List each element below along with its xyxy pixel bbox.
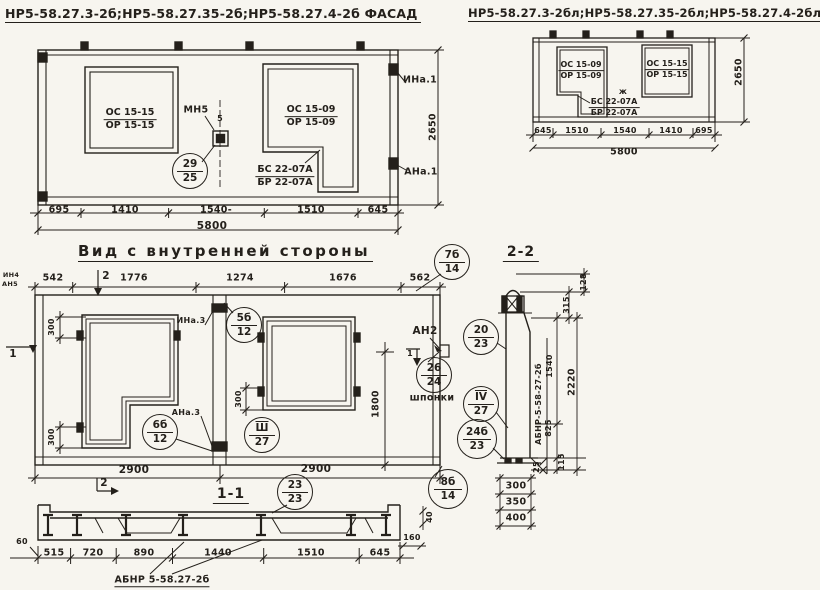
dim-total-5800-r: 5800	[610, 147, 638, 157]
dim-40: 40	[426, 511, 434, 523]
dim-400-stack: 400	[506, 513, 527, 523]
callout-29-25: 2925	[172, 153, 208, 189]
blueprint-canvas: НР5-58.27.3-2б;НР5-58.27.35-2б;НР5-58.27…	[0, 0, 820, 590]
zh-note: ж	[619, 88, 627, 96]
dim-1540: 1540-	[200, 205, 232, 215]
dim-1800: 1800	[371, 390, 381, 418]
section-1-1-title: 1-1	[213, 486, 249, 504]
callout-20-23: 2023	[463, 319, 499, 355]
height-dim-2650: 2650	[428, 113, 438, 141]
dim-1540-r: 1540	[613, 127, 636, 135]
dim-825: 825	[545, 419, 553, 437]
dim-695-r: 695	[695, 127, 713, 135]
dim-1676: 1676	[329, 273, 357, 283]
panel-mark-abnr: АБНР-5-58-27-2б	[535, 363, 543, 445]
dim-1510-r: 1510	[565, 127, 588, 135]
dim-60: 60	[16, 538, 28, 546]
micro-label-in4: ИН4	[3, 272, 19, 279]
dim-300-top: 300	[48, 318, 56, 336]
window-mark-os15-15-r: ОС 15-15ОР 15-15	[644, 59, 689, 81]
dim-645-s1: 645	[370, 548, 391, 558]
dim-1410-r: 1410	[659, 127, 682, 135]
dim-300-stack: 300	[506, 481, 527, 491]
anchor-ina1-label: ИНа.1	[403, 75, 437, 85]
callout-5b-12: 5б12	[226, 307, 262, 343]
mn5-label: МН5	[184, 105, 209, 115]
section-marker-1-right: 1	[407, 350, 413, 358]
dim-315: 315	[563, 296, 571, 314]
section-marker-2-bottom: 2	[100, 478, 108, 489]
facade-left-title: НР5-58.27.3-2б;НР5-58.27.35-2б;НР5-58.27…	[5, 6, 421, 23]
window-mark-os15-09: ОС 15-09ОР 15-09	[285, 104, 338, 130]
gap-5-dim: 5	[217, 115, 223, 123]
anchor-ana3-label: АНа.3	[172, 409, 200, 417]
callout-IV-27: IV27	[463, 386, 499, 422]
callout-7b-14: 7б14	[434, 244, 470, 280]
dim-562: 562	[410, 273, 431, 283]
dim-720: 720	[83, 548, 104, 558]
dim-1510-s1: 1510	[297, 548, 325, 558]
dim-2220: 2220	[567, 368, 577, 396]
dim-645-r: 645	[534, 127, 552, 135]
dim-1776: 1776	[120, 273, 148, 283]
anchor-ina3-label: ИНа.3	[177, 317, 206, 325]
section-2-2-title: 2-2	[503, 244, 539, 262]
dim-542: 542	[43, 273, 64, 283]
dim-2900-right: 2900	[301, 464, 331, 475]
dim-1410: 1410	[111, 205, 139, 215]
dim-300-center: 300	[235, 390, 243, 408]
callout-III-27: Ш27	[244, 417, 280, 453]
section-marker-2-top: 2	[102, 271, 110, 282]
dim-890: 890	[134, 548, 155, 558]
shponki-label: шпонки	[410, 393, 455, 403]
an2-label: АН2	[412, 326, 437, 337]
facade-right-linework	[526, 31, 750, 152]
dim-160: 160	[403, 534, 421, 542]
dim-128: 128	[580, 273, 588, 291]
section-marker-1-left: 1	[9, 349, 17, 360]
dim-300-bottom: 300	[48, 428, 56, 446]
callout-8b-14: 8б14	[428, 469, 468, 509]
drawing-linework	[0, 0, 820, 590]
inner-view-title: Вид с внутренней стороны	[78, 242, 373, 262]
dim-515: 515	[44, 548, 65, 558]
anchor-ana1-label: АНа.1	[404, 167, 437, 177]
callout-23-23: 2323	[277, 474, 313, 510]
dim-2900-left: 2900	[119, 465, 149, 476]
dim-115: 115	[558, 453, 566, 471]
micro-label-an5: АН5	[2, 281, 18, 288]
window-mark-os15-15: ОС 15-15ОР 15-15	[104, 107, 157, 133]
beam-mark-bs22-07a: БС 22-07АБР 22-07А	[255, 164, 314, 190]
dim-645: 645	[368, 205, 389, 215]
dim-1274: 1274	[226, 273, 254, 283]
panel-mark-abnr-s1: АБНР 5-58.27-2б	[114, 575, 209, 587]
facade-right-title: НР5-58.27.3-2бл;НР5-58.27.35-2бл;НР5-58.…	[468, 6, 820, 22]
inner-view-linework	[6, 270, 449, 495]
callout-6b-12: 6б12	[142, 414, 178, 450]
section-1-1-linework	[10, 505, 427, 574]
callout-24b-23: 24б23	[457, 419, 497, 459]
beam-mark-bs22-07a-r: БС 22-07АБР 22-07А	[589, 97, 640, 119]
dim-695: 695	[49, 205, 70, 215]
dim-350-stack: 350	[506, 497, 527, 507]
dim-total-5800: 5800	[197, 221, 227, 232]
dim-1540-s2: 1540	[546, 354, 554, 377]
dim-25: 25	[533, 461, 541, 473]
dim-1510: 1510	[297, 205, 325, 215]
dim-1440: 1440	[204, 548, 232, 558]
height-dim-2650-r: 2650	[734, 58, 744, 86]
callout-26-24: 2624	[416, 357, 452, 393]
window-mark-os15-09-r: ОС 15-09ОР 15-09	[558, 60, 603, 82]
